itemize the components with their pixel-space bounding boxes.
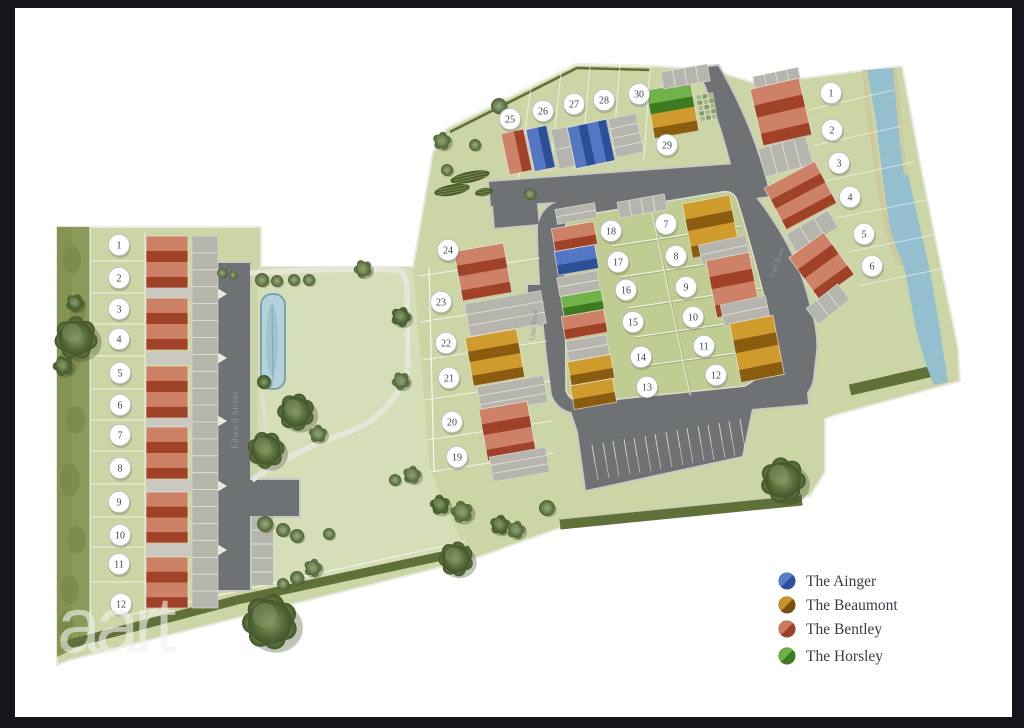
- svg-text:The Bentley: The Bentley: [806, 621, 882, 638]
- svg-text:7: 7: [664, 219, 669, 230]
- svg-text:28: 28: [599, 95, 609, 106]
- svg-text:11: 11: [699, 341, 709, 352]
- svg-text:The Ainger: The Ainger: [806, 573, 877, 590]
- svg-text:3: 3: [837, 158, 842, 169]
- svg-text:24: 24: [443, 245, 453, 256]
- svg-text:5: 5: [118, 368, 123, 379]
- svg-text:2: 2: [830, 125, 835, 136]
- svg-text:1: 1: [117, 240, 122, 251]
- svg-text:21: 21: [444, 373, 454, 384]
- svg-text:30: 30: [634, 89, 644, 100]
- svg-text:22: 22: [441, 338, 451, 349]
- svg-text:13: 13: [642, 382, 652, 393]
- svg-text:17: 17: [613, 257, 623, 268]
- svg-text:14: 14: [636, 352, 646, 363]
- svg-text:10: 10: [115, 530, 125, 541]
- svg-text:The Beaumont: The Beaumont: [806, 597, 898, 614]
- svg-text:aart: aart: [57, 580, 177, 669]
- svg-text:29: 29: [662, 140, 672, 151]
- svg-text:15: 15: [628, 317, 638, 328]
- svg-text:8: 8: [674, 251, 679, 262]
- svg-text:7: 7: [118, 430, 123, 441]
- svg-text:6: 6: [870, 261, 875, 272]
- svg-text:10: 10: [688, 312, 698, 323]
- svg-text:27: 27: [569, 99, 579, 110]
- svg-text:20: 20: [447, 417, 457, 428]
- svg-text:The Horsley: The Horsley: [806, 648, 883, 665]
- svg-text:12: 12: [711, 370, 721, 381]
- svg-text:26: 26: [538, 106, 548, 117]
- svg-text:19: 19: [452, 452, 462, 463]
- svg-text:5: 5: [862, 229, 867, 240]
- svg-text:6: 6: [118, 400, 123, 411]
- svg-text:25: 25: [505, 114, 515, 125]
- svg-text:9: 9: [684, 282, 689, 293]
- svg-text:2: 2: [117, 273, 122, 284]
- svg-text:1: 1: [829, 88, 834, 99]
- svg-text:3: 3: [117, 304, 122, 315]
- svg-text:4: 4: [848, 192, 853, 203]
- svg-text:18: 18: [606, 226, 616, 237]
- svg-text:16: 16: [621, 285, 631, 296]
- svg-text:4: 4: [117, 334, 122, 345]
- svg-text:23: 23: [436, 297, 446, 308]
- svg-text:8: 8: [118, 463, 123, 474]
- svg-text:9: 9: [117, 497, 122, 508]
- svg-text:11: 11: [114, 559, 124, 570]
- svg-text:Edward Street: Edward Street: [230, 391, 240, 449]
